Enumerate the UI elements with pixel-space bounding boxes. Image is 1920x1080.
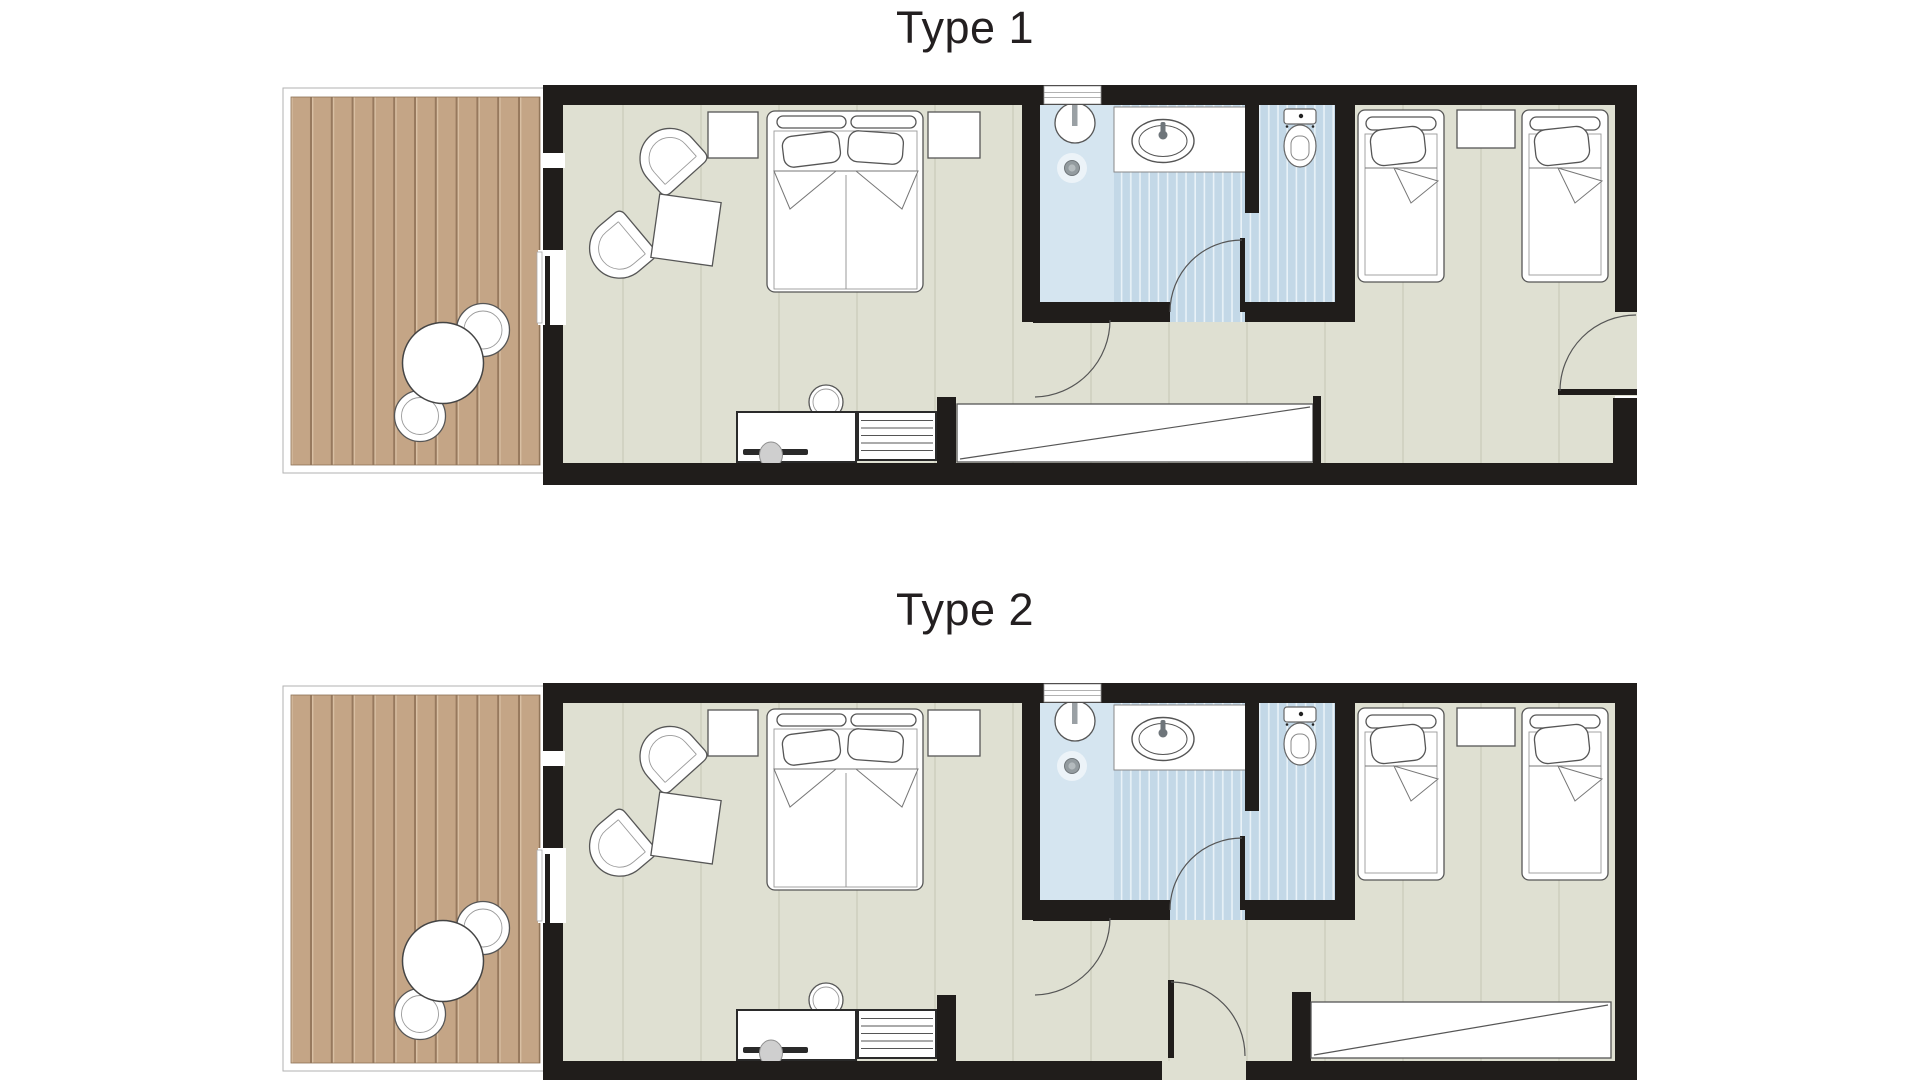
exterior-wall-bottom <box>543 1061 1162 1080</box>
wardrobe-icon <box>1292 992 1611 1061</box>
floor-entry-patch <box>1615 312 1637 396</box>
floorplan-sheet: Type 1 Type 2 <box>0 0 1920 1080</box>
exterior-wall-right <box>1615 85 1637 312</box>
wardrobe-icon <box>957 396 1321 463</box>
exterior-wall-right <box>1613 398 1637 485</box>
floor-entry-patch <box>1162 1061 1246 1080</box>
floorplan-canvas <box>0 0 1920 1080</box>
exterior-wall-bottom <box>543 463 1637 485</box>
exterior-wall-right <box>1615 683 1637 1080</box>
exterior-wall-bottom <box>1246 1061 1637 1080</box>
floor-plan-type-1 <box>283 85 1637 485</box>
floor-plan-type-2 <box>283 683 1637 1080</box>
